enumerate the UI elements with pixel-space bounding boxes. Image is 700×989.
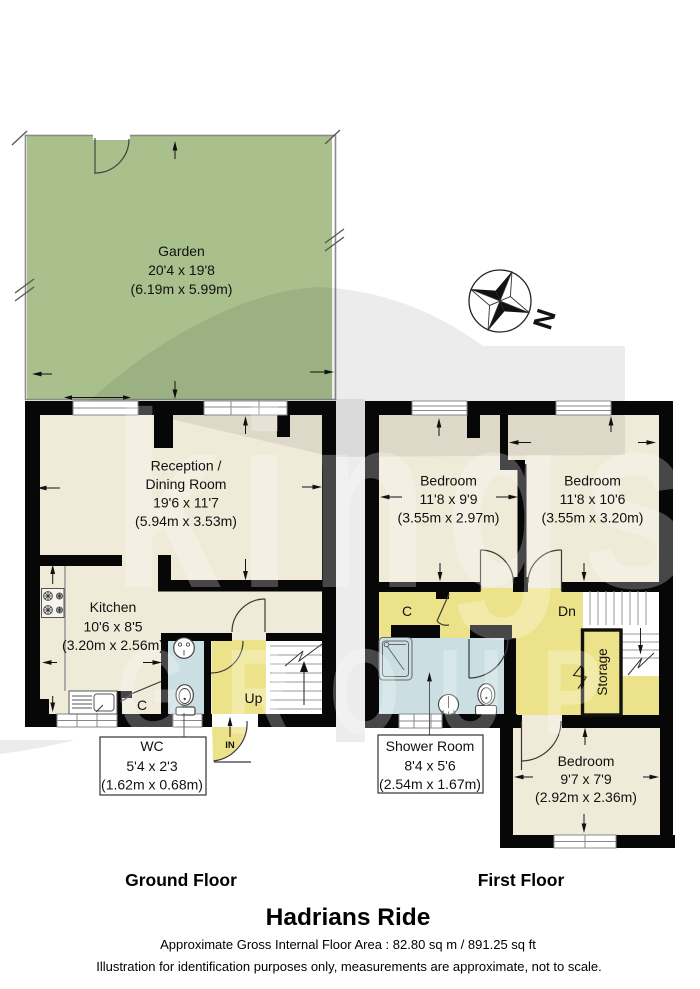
svg-text:Approximate Gross Internal Flo: Approximate Gross Internal Floor Area : … — [160, 937, 536, 952]
svg-text:Hadrians Ride: Hadrians Ride — [266, 904, 431, 931]
svg-text:Dn: Dn — [558, 603, 576, 619]
svg-text:Garden: Garden — [158, 243, 205, 259]
svg-text:WC: WC — [140, 738, 163, 754]
svg-text:Bedroom: Bedroom — [558, 753, 615, 769]
svg-text:(5.94m x 3.53m): (5.94m x 3.53m) — [135, 513, 237, 529]
svg-text:(2.54m x 1.67m): (2.54m x 1.67m) — [379, 776, 481, 792]
svg-text:(3.20m x 2.56m): (3.20m x 2.56m) — [62, 637, 164, 653]
svg-text:(1.62m x 0.68m): (1.62m x 0.68m) — [101, 777, 203, 793]
svg-text:9'7 x 7'9: 9'7 x 7'9 — [560, 771, 611, 787]
svg-text:C: C — [137, 697, 147, 713]
svg-text:C: C — [402, 603, 412, 619]
svg-text:5'4 x 2'3: 5'4 x 2'3 — [126, 758, 177, 774]
svg-text:Bedroom: Bedroom — [420, 473, 477, 489]
svg-text:Ground Floor: Ground Floor — [125, 870, 237, 890]
svg-text:20'4 x 19'8: 20'4 x 19'8 — [148, 262, 215, 278]
svg-text:Reception /: Reception / — [151, 458, 222, 474]
svg-text:Shower Room: Shower Room — [386, 738, 475, 754]
svg-text:(3.55m x 2.97m): (3.55m x 2.97m) — [398, 510, 500, 526]
svg-text:11'8 x 10'6: 11'8 x 10'6 — [560, 491, 626, 507]
svg-text:IN: IN — [225, 740, 235, 751]
svg-text:Bedroom: Bedroom — [564, 473, 621, 489]
svg-text:Illustration for identificatio: Illustration for identification purposes… — [96, 959, 602, 974]
svg-text:Kitchen: Kitchen — [90, 599, 137, 615]
svg-text:(2.92m x 2.36m): (2.92m x 2.36m) — [535, 789, 637, 805]
svg-text:19'6 x 11'7: 19'6 x 11'7 — [153, 495, 219, 511]
svg-text:(6.19m x 5.99m): (6.19m x 5.99m) — [131, 281, 233, 297]
svg-text:Up: Up — [245, 690, 263, 706]
svg-text:Storage: Storage — [595, 648, 610, 695]
svg-text:First Floor: First Floor — [478, 870, 565, 890]
svg-text:(3.55m x 3.20m): (3.55m x 3.20m) — [542, 510, 644, 526]
svg-text:Dining Room: Dining Room — [146, 476, 227, 492]
svg-text:11'8 x 9'9: 11'8 x 9'9 — [419, 491, 477, 507]
svg-text:8'4 x 5'6: 8'4 x 5'6 — [404, 758, 455, 774]
svg-text:10'6 x 8'5: 10'6 x 8'5 — [83, 619, 142, 635]
